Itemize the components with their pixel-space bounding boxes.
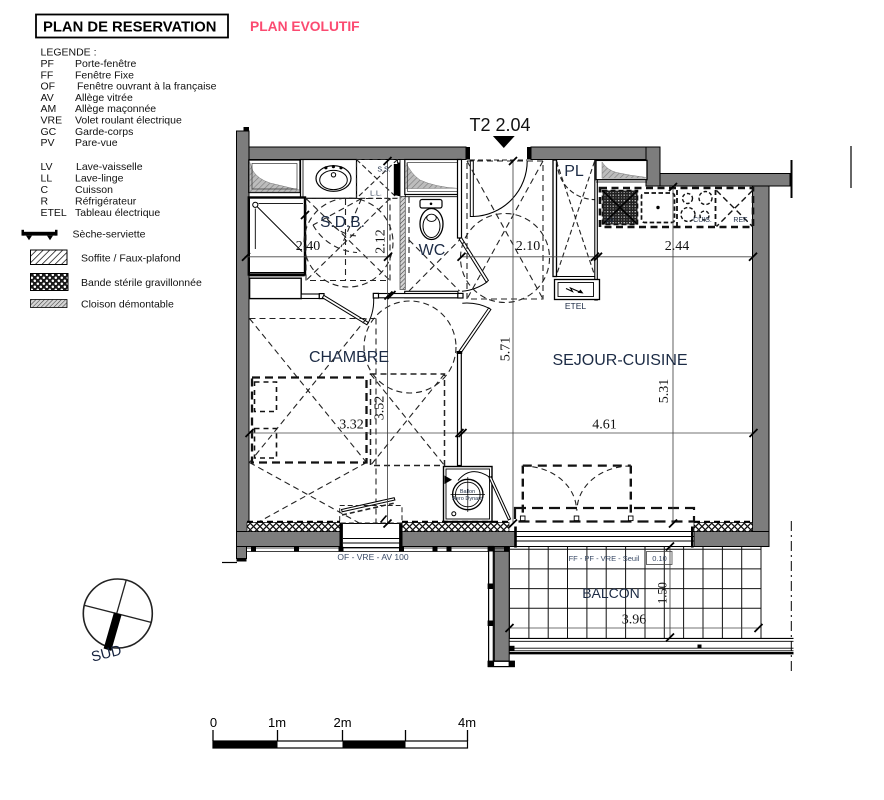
svg-text:2.44: 2.44 [665,239,690,254]
svg-text:AM: AM [41,103,57,115]
svg-text:PL: PL [564,163,584,180]
svg-text:LV: LV [41,161,53,173]
svg-text:AV: AV [41,92,54,104]
svg-text:LV: LV [606,218,614,225]
svg-text:Garde-corps: Garde-corps [75,126,133,138]
svg-text:T2 2.04: T2 2.04 [469,115,530,135]
svg-text:Soffite / Faux-plafond: Soffite / Faux-plafond [81,253,181,265]
svg-text:FF: FF [41,69,54,81]
svg-text:Lave-linge: Lave-linge [75,173,124,185]
svg-text:Fenêtre ouvrant à la française: Fenêtre ouvrant à la française [77,81,217,93]
svg-text:PLAN DE RESERVATION: PLAN DE RESERVATION [43,20,216,36]
svg-text:WC: WC [419,242,446,259]
svg-text:Sèche-serviette: Sèche-serviette [73,229,146,241]
svg-text:2.40: 2.40 [296,239,321,254]
svg-text:Tableau électrique: Tableau électrique [75,207,160,219]
svg-text:Ballon: Ballon [460,489,475,495]
svg-text:2.10: 2.10 [516,239,541,254]
svg-text:Bande stérile gravillonnée: Bande stérile gravillonnée [81,277,202,289]
svg-text:PLAN EVOLUTIF: PLAN EVOLUTIF [250,19,360,34]
svg-text:Aero Dynam: Aero Dynam [452,496,483,502]
svg-text:GC: GC [41,126,57,138]
svg-text:CHAMBRE: CHAMBRE [309,349,389,366]
svg-text:OF: OF [41,81,56,93]
svg-text:ETEL: ETEL [41,207,67,219]
svg-text:Fenêtre Fixe: Fenêtre Fixe [75,69,134,81]
svg-text:1.50: 1.50 [656,582,670,604]
svg-text:3.32: 3.32 [339,418,364,433]
svg-text:SEJOUR-CUISINE: SEJOUR-CUISINE [552,352,687,369]
svg-text:Lave-vaisselle: Lave-vaisselle [76,161,143,173]
svg-text:Allège vitrée: Allège vitrée [75,92,133,104]
svg-text:2m: 2m [333,715,351,730]
svg-text:1m: 1m [268,715,286,730]
svg-text:0: 0 [210,715,217,730]
svg-text:Cuisson: Cuisson [75,184,113,196]
svg-text:4.61: 4.61 [592,418,617,433]
svg-text:OF - VRE - AV 100: OF - VRE - AV 100 [337,552,408,562]
svg-text:5.31: 5.31 [657,379,672,404]
svg-text:5.71: 5.71 [499,337,514,362]
svg-text:L.L.: L.L. [370,191,382,198]
svg-text:Allège maçonnée: Allège maçonnée [75,103,156,115]
svg-text:0.10: 0.10 [652,554,667,563]
svg-text:PF: PF [41,58,54,70]
svg-text:BALCON: BALCON [582,585,640,601]
svg-text:2.12: 2.12 [374,229,389,254]
svg-text:VRE: VRE [41,115,63,127]
svg-text:CUIS.: CUIS. [693,217,712,224]
svg-text:REF.: REF. [733,217,748,224]
svg-text:Cloison démontable: Cloison démontable [81,299,174,311]
svg-text:R: R [41,196,49,208]
svg-text:C: C [41,184,49,196]
svg-text:3.96: 3.96 [622,613,647,628]
svg-text:LEGENDE :: LEGENDE : [41,47,97,59]
svg-text:3.52: 3.52 [373,396,388,421]
svg-text:LL: LL [41,173,53,185]
svg-text:Porte-fenêtre: Porte-fenêtre [75,58,136,70]
svg-text:Pare-vue: Pare-vue [75,137,118,149]
svg-text:4m: 4m [458,715,476,730]
svg-text:S.D.B.: S.D.B. [320,214,365,231]
svg-text:FF - PF - VRE - Seuil: FF - PF - VRE - Seuil [569,554,640,563]
svg-text:Volet roulant électrique: Volet roulant électrique [75,115,182,127]
svg-text:PV: PV [41,137,55,149]
svg-text:Réfrigérateur: Réfrigérateur [75,196,137,208]
svg-text:S.S.: S.S. [377,167,390,174]
svg-text:ETEL: ETEL [565,301,587,311]
